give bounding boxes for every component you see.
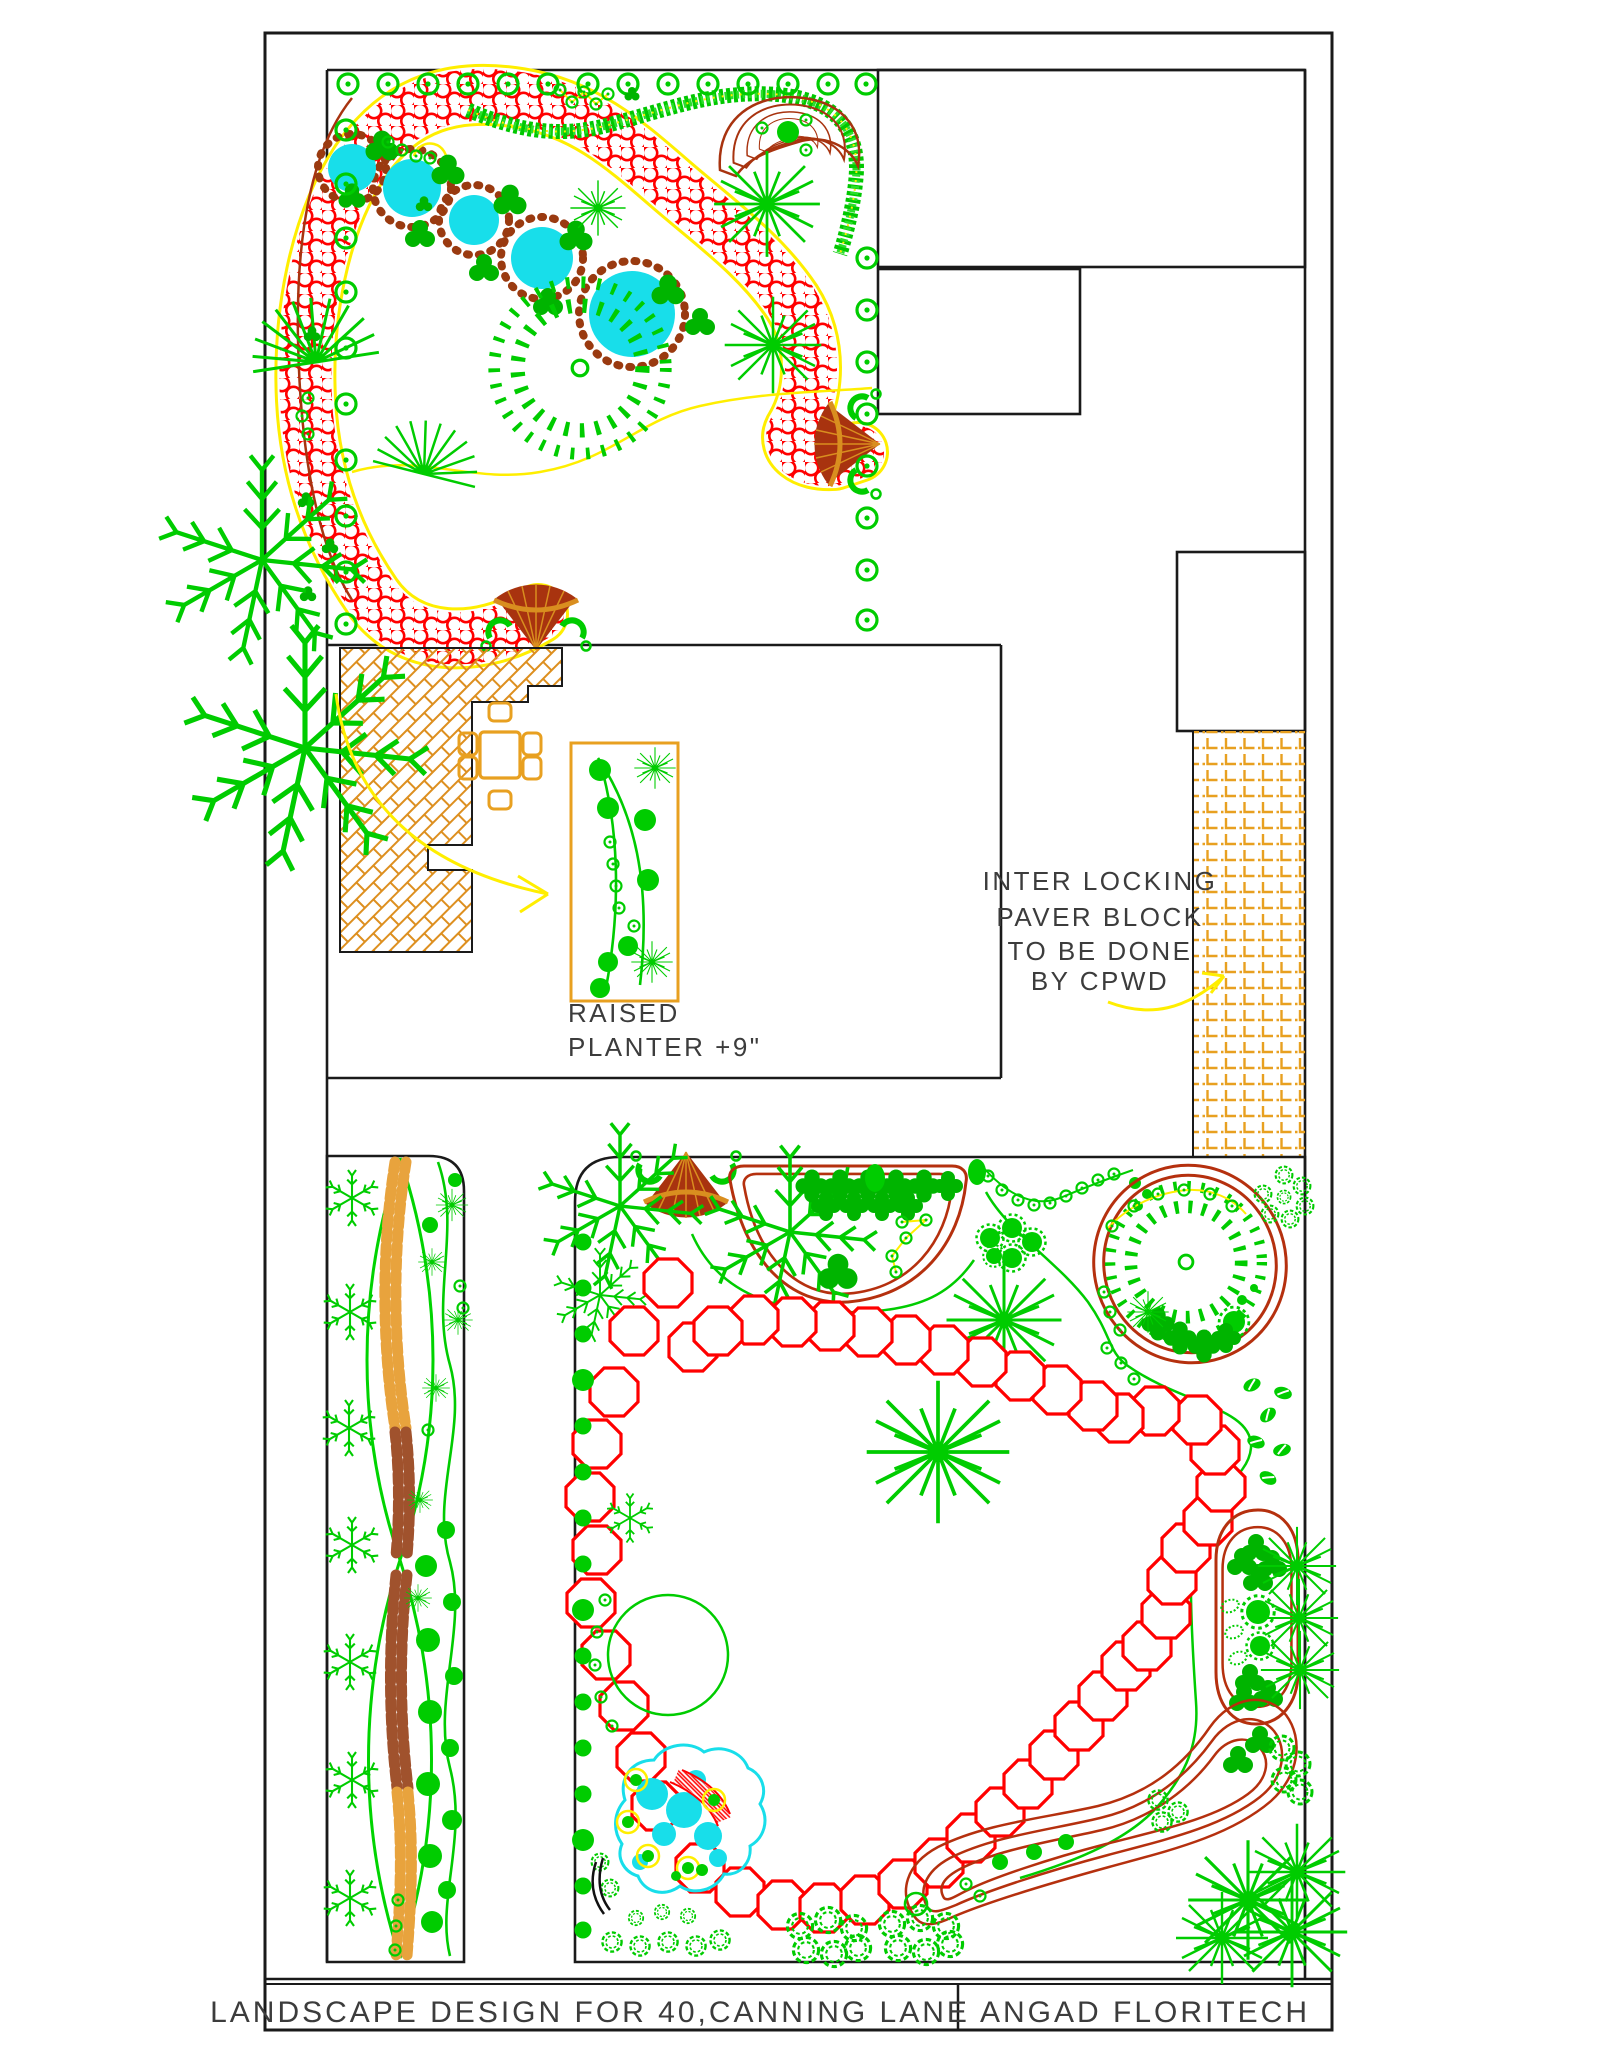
paver-strip [1193, 731, 1305, 1157]
pompom-cluster [977, 1215, 1046, 1272]
project-title: LANDSCAPE DESIGN FOR 40,CANNING LANE [210, 1996, 970, 2029]
main-garden [537, 1123, 1347, 1987]
raised-planter [571, 743, 678, 1001]
top-garden [238, 74, 880, 651]
starburst-tree [867, 1381, 1010, 1524]
planter-note-line1: RAISED [568, 998, 680, 1028]
starburst-tree [725, 297, 822, 394]
paver-note-line4: BY CPWD [1031, 966, 1169, 996]
paver-note-line3: TO BE DONE [1008, 936, 1193, 966]
starburst-tree [570, 180, 625, 235]
fan-grass-tree [371, 414, 483, 487]
planter-note: RAISED PLANTER +9" [568, 998, 762, 1062]
plan-sheet: INTER LOCKING PAVER BLOCK TO BE DONE BY … [0, 0, 1600, 2071]
capsule-bed [1216, 1510, 1339, 1724]
building-block-c [1177, 552, 1305, 731]
landscape-plan-canvas: INTER LOCKING PAVER BLOCK TO BE DONE BY … [0, 0, 1600, 2071]
building-block-b [878, 269, 1080, 414]
title-block: LANDSCAPE DESIGN FOR 40,CANNING LANE ANG… [210, 1996, 1310, 2029]
starburst-tree [714, 151, 820, 257]
courtyard: RAISED PLANTER +9" [157, 456, 761, 1062]
planter-note-line2: PLANTER +9" [568, 1032, 762, 1062]
building-block-a [878, 70, 1305, 267]
half-moon-bed [703, 1146, 966, 1320]
paver-note: INTER LOCKING PAVER BLOCK TO BE DONE BY … [983, 866, 1224, 1010]
paver-note-line1: INTER LOCKING [983, 866, 1218, 896]
paver-note-line2: PAVER BLOCK [996, 902, 1203, 932]
firm-name: ANGAD FLORITECH [980, 1996, 1310, 2029]
stem-line [438, 1162, 456, 1956]
left-planting-strip [322, 1156, 472, 1962]
